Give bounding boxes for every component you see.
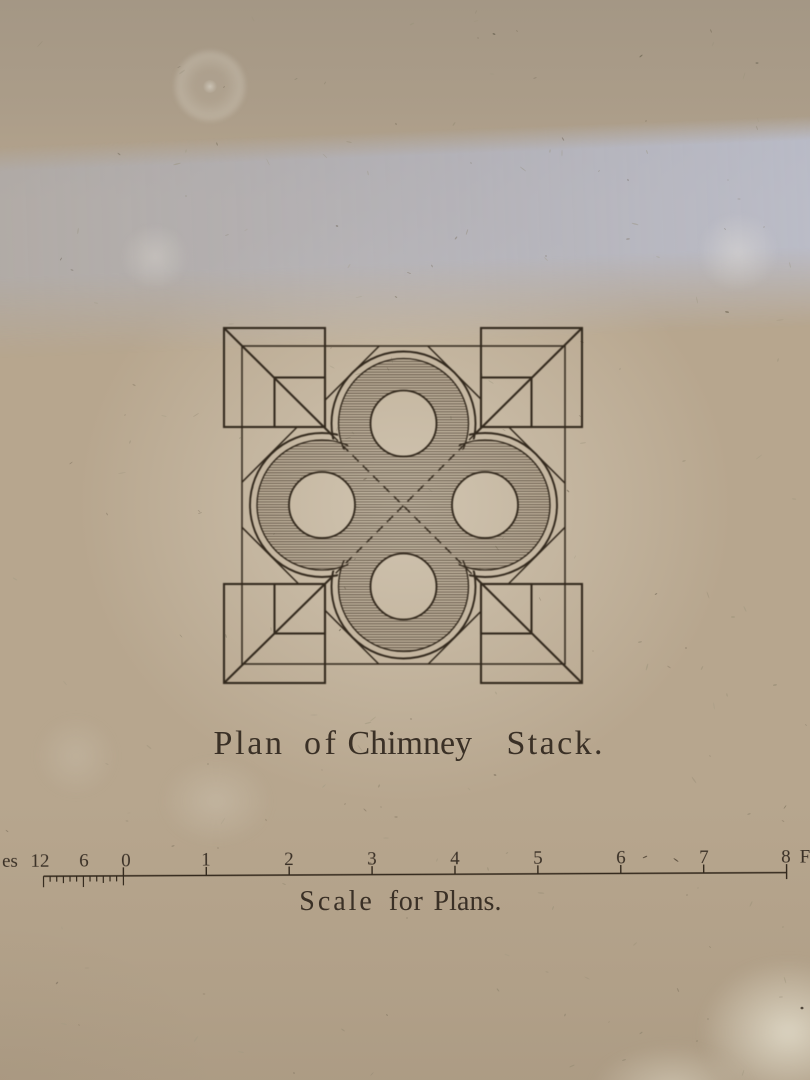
svg-text:12: 12 <box>30 851 49 872</box>
svg-text:es: es <box>2 851 18 872</box>
svg-text:4: 4 <box>450 848 460 869</box>
svg-text:of: of <box>304 725 337 762</box>
svg-text:Plans.: Plans. <box>434 886 502 917</box>
svg-text:for: for <box>389 886 424 917</box>
svg-text:2: 2 <box>284 849 294 870</box>
svg-text:8: 8 <box>781 847 791 868</box>
svg-text:6: 6 <box>616 847 626 868</box>
svg-text:F: F <box>800 846 810 867</box>
svg-text:3: 3 <box>367 849 377 870</box>
svg-text:Plan: Plan <box>214 725 283 762</box>
svg-text:Scale: Scale <box>299 886 372 917</box>
svg-text:0: 0 <box>121 850 131 871</box>
svg-text:5: 5 <box>533 848 543 869</box>
svg-text:Stack.: Stack. <box>507 725 603 762</box>
svg-text:1: 1 <box>201 849 211 870</box>
svg-text:Chimney: Chimney <box>348 725 473 762</box>
svg-text:7: 7 <box>699 847 709 868</box>
svg-text:6: 6 <box>79 851 89 872</box>
